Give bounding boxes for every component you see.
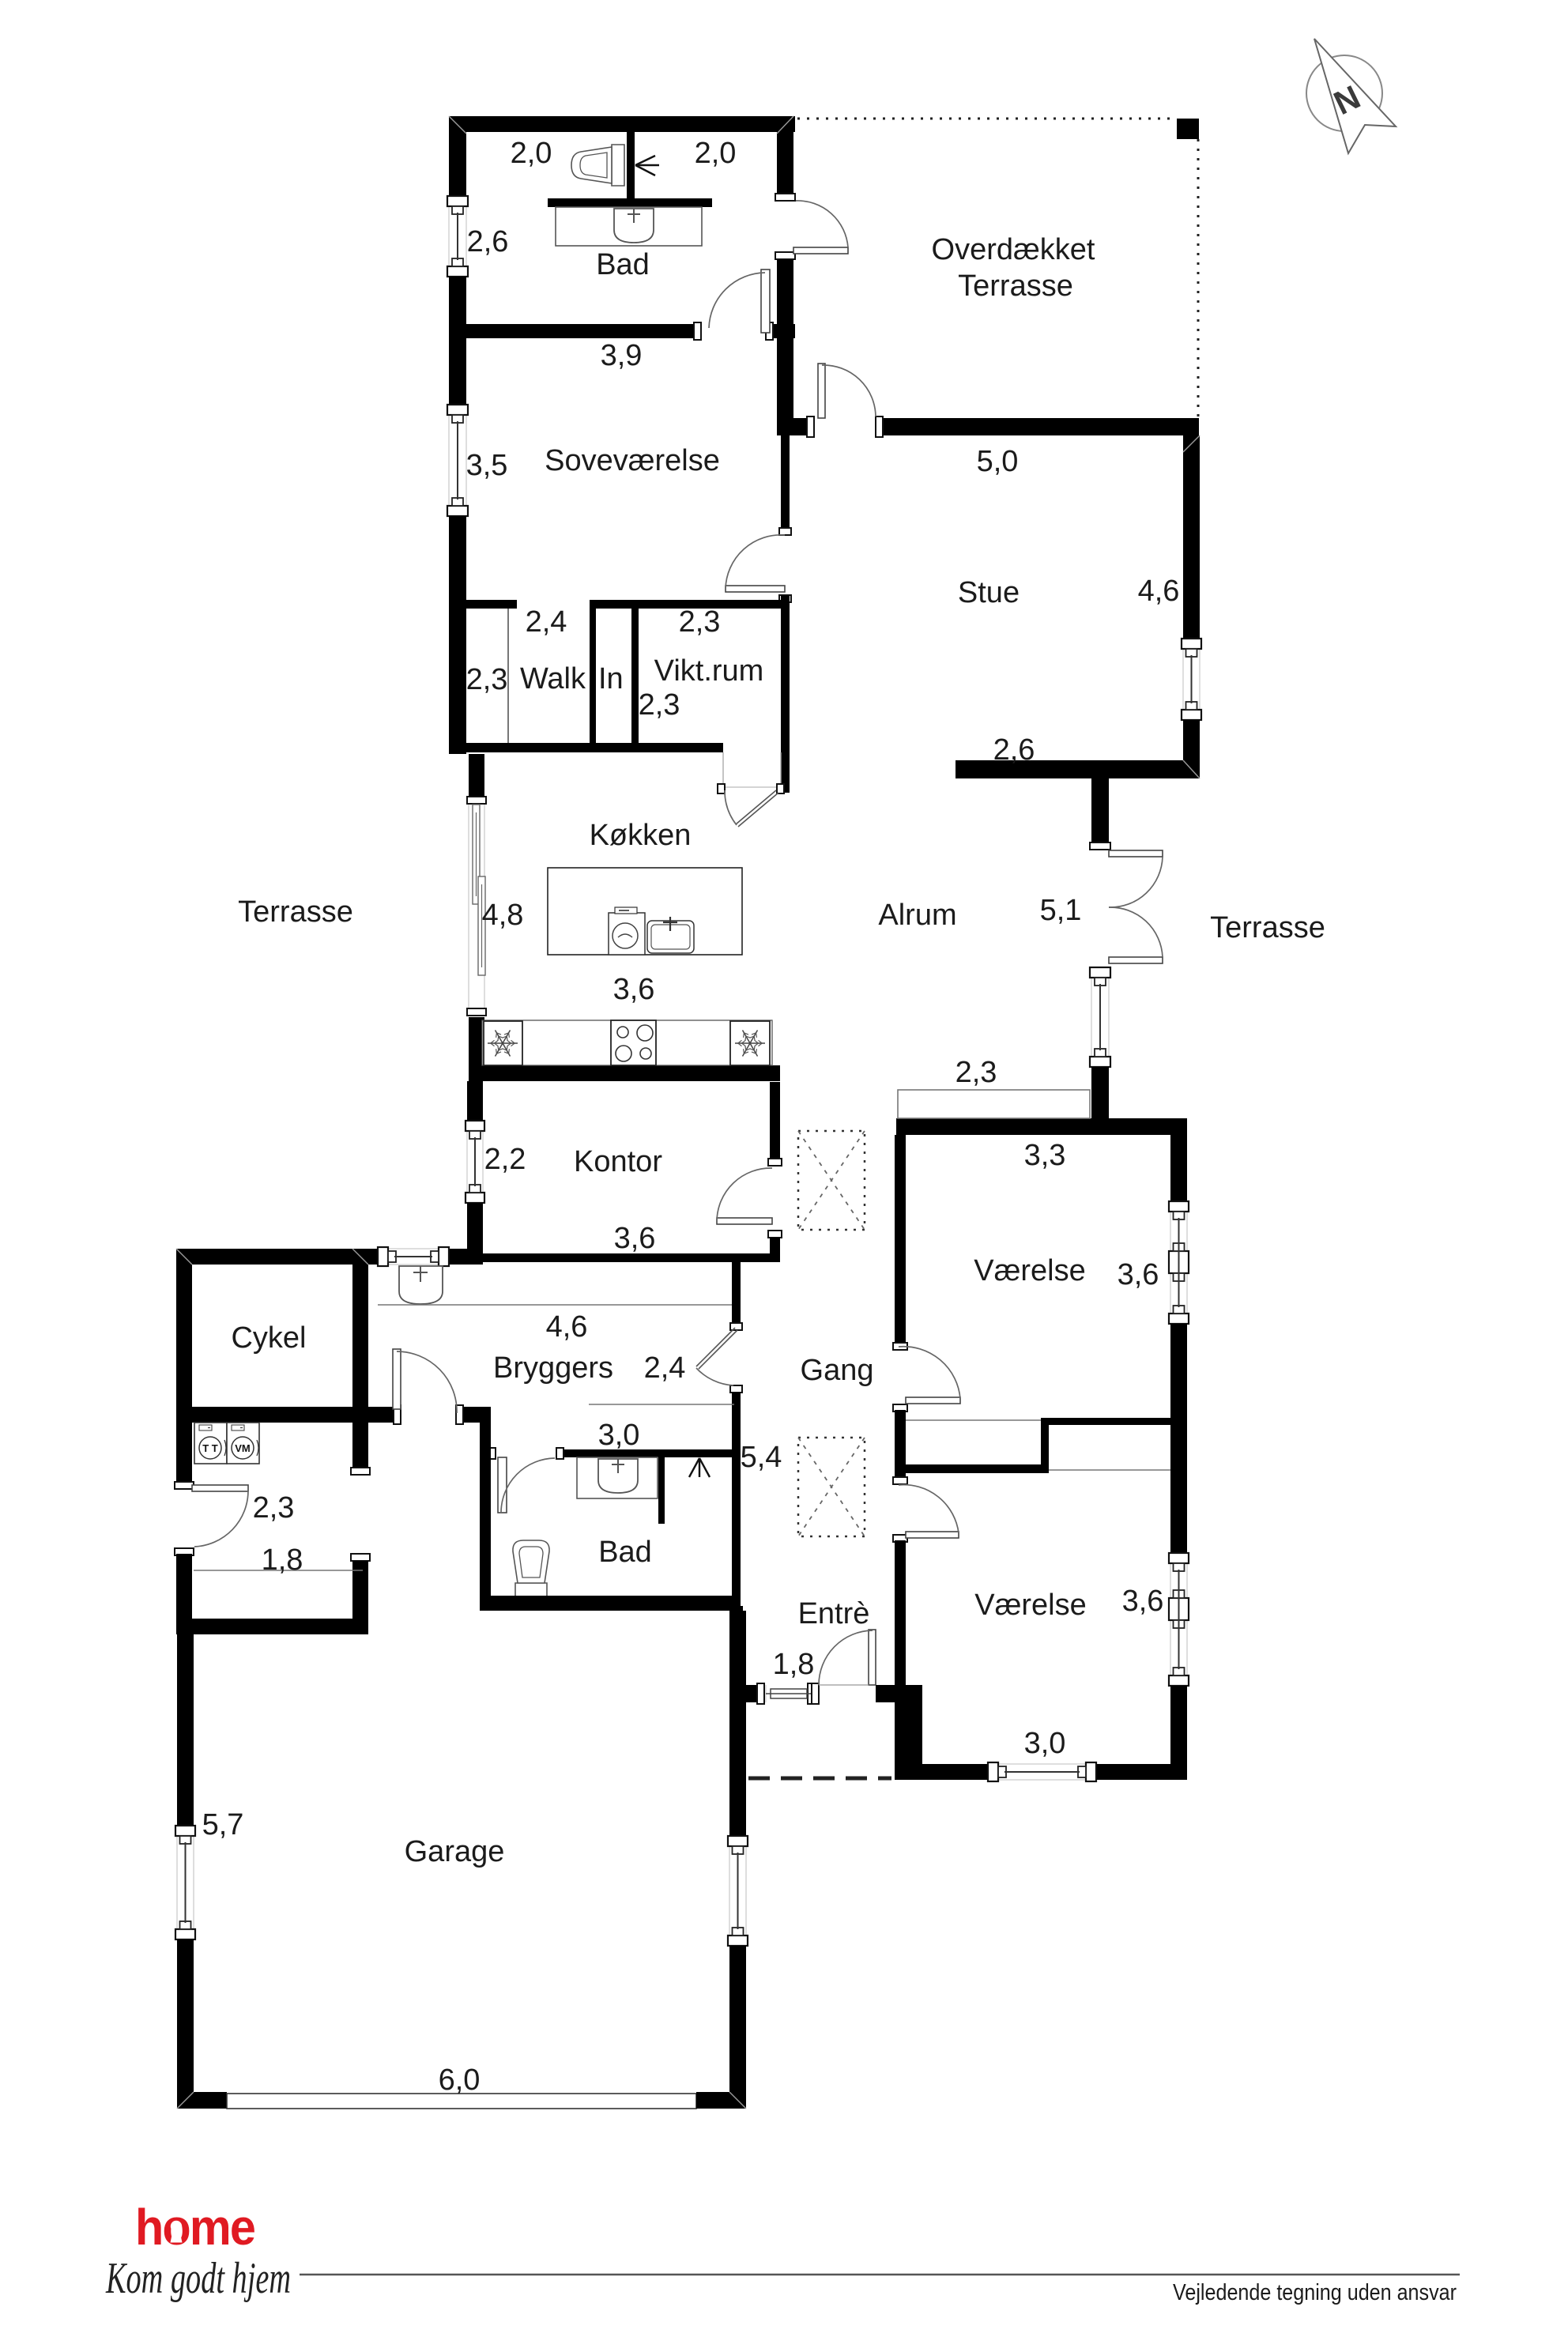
svg-text:Terrasse: Terrasse <box>238 895 353 929</box>
svg-text:T T: T T <box>202 1442 218 1454</box>
svg-text:1,8: 1,8 <box>773 1648 815 1681</box>
svg-text:Bad: Bad <box>598 1536 652 1569</box>
svg-text:4,6: 4,6 <box>546 1310 588 1344</box>
svg-text:2,0: 2,0 <box>511 137 552 170</box>
svg-text:2,2: 2,2 <box>484 1143 526 1176</box>
svg-text:home: home <box>135 2199 254 2256</box>
svg-text:5,0: 5,0 <box>977 445 1019 478</box>
svg-text:3,0: 3,0 <box>598 1419 640 1452</box>
svg-text:2,4: 2,4 <box>526 605 567 639</box>
svg-text:Terrasse: Terrasse <box>958 269 1073 303</box>
svg-text:Gang: Gang <box>801 1354 874 1387</box>
svg-text:2,3: 2,3 <box>955 1056 997 1089</box>
svg-text:Vikt.rum: Vikt.rum <box>654 654 764 688</box>
svg-text:5,7: 5,7 <box>202 1808 244 1841</box>
svg-text:Soveværelse: Soveværelse <box>545 444 720 477</box>
svg-text:2,3: 2,3 <box>466 663 508 696</box>
svg-text:3,5: 3,5 <box>466 449 508 482</box>
svg-text:5,1: 5,1 <box>1040 894 1082 927</box>
svg-text:Værelse: Værelse <box>974 1589 1087 1622</box>
svg-text:3,3: 3,3 <box>1024 1139 1066 1172</box>
svg-text:In: In <box>598 662 624 695</box>
svg-text:3,6: 3,6 <box>613 973 655 1006</box>
svg-text:Walk: Walk <box>520 662 586 695</box>
svg-text:4,6: 4,6 <box>1138 575 1180 608</box>
svg-text:3,0: 3,0 <box>1024 1727 1066 1760</box>
svg-text:4,8: 4,8 <box>482 899 524 932</box>
svg-text:2,3: 2,3 <box>253 1491 295 1525</box>
svg-text:3,6: 3,6 <box>614 1222 656 1255</box>
svg-text:3,6: 3,6 <box>1122 1585 1164 1618</box>
svg-text:2,4: 2,4 <box>644 1351 686 1385</box>
svg-text:Overdækket: Overdækket <box>932 233 1095 266</box>
svg-text:5,4: 5,4 <box>741 1441 782 1474</box>
svg-text:Bryggers: Bryggers <box>493 1351 613 1385</box>
svg-text:3,6: 3,6 <box>1118 1258 1159 1291</box>
svg-text:Værelse: Værelse <box>974 1254 1086 1287</box>
svg-text:1,8: 1,8 <box>262 1543 303 1577</box>
svg-text:Kontor: Kontor <box>574 1145 662 1178</box>
svg-text:Bad: Bad <box>596 248 650 281</box>
svg-text:6,0: 6,0 <box>439 2064 481 2097</box>
svg-text:2,3: 2,3 <box>639 688 680 722</box>
svg-text:Stue: Stue <box>958 576 1020 609</box>
svg-text:VM: VM <box>235 1442 251 1454</box>
svg-text:2,0: 2,0 <box>695 137 737 170</box>
svg-text:Alrum: Alrum <box>878 899 956 932</box>
svg-text:2,6: 2,6 <box>467 225 509 258</box>
svg-text:Entrè: Entrè <box>798 1597 870 1630</box>
svg-text:Garage: Garage <box>405 1835 505 1868</box>
svg-text:Vejledende tegning uden ansvar: Vejledende tegning uden ansvar <box>1173 2280 1457 2305</box>
svg-text:Terrasse: Terrasse <box>1210 911 1325 944</box>
svg-text:3,9: 3,9 <box>601 339 643 372</box>
svg-text:Cykel: Cykel <box>231 1321 306 1355</box>
svg-text:2,3: 2,3 <box>679 605 721 639</box>
svg-text:2,6: 2,6 <box>993 733 1035 767</box>
svg-text:Kom godt hjem: Kom godt hjem <box>105 2254 291 2303</box>
svg-text:Køkken: Køkken <box>590 819 692 852</box>
